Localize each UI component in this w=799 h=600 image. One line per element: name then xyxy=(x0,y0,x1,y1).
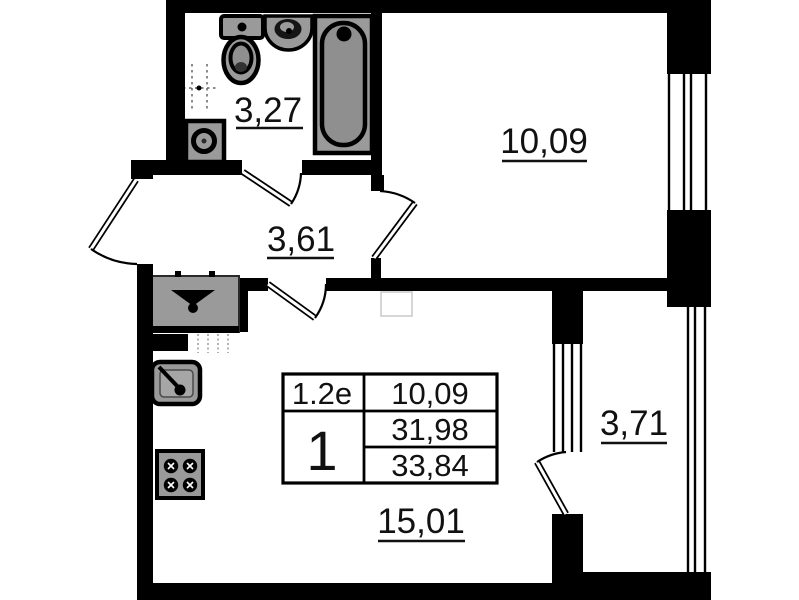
toilet xyxy=(221,16,263,83)
total-area-value: 33,84 xyxy=(391,448,469,483)
washing-machine-hub xyxy=(202,139,207,144)
kitchen-door xyxy=(268,284,326,318)
door-swing-arc xyxy=(380,191,415,203)
window-room xyxy=(669,73,706,210)
washing-machine xyxy=(186,121,224,162)
label-room-area: 10,09 xyxy=(500,122,588,161)
room-door xyxy=(374,191,415,258)
vent-nub xyxy=(209,271,215,277)
wash-basin xyxy=(265,16,312,50)
balcony-glazing xyxy=(688,305,705,574)
door-leaf-inner xyxy=(537,462,566,514)
label-kitchen-living-area: 15,01 xyxy=(377,502,465,541)
riser-point xyxy=(197,86,202,91)
wall-balcony-pier-bottom xyxy=(552,514,583,600)
room-count-value: 1 xyxy=(306,419,337,482)
living-area-value: 10,09 xyxy=(391,376,469,411)
vent-box-bottom xyxy=(151,326,239,333)
wall-hall-kitchen-long xyxy=(326,278,670,291)
balcony-door xyxy=(537,452,566,514)
bathtub-drain xyxy=(337,27,352,42)
toilet-bowl-shade xyxy=(235,62,247,72)
unit-info-table: 1.2е 1 10,09 31,98 33,84 xyxy=(283,374,497,483)
basin-drain xyxy=(286,28,292,34)
entrance-door xyxy=(91,180,137,264)
bathtub xyxy=(315,16,372,153)
label-balcony-area: 3,71 xyxy=(600,404,668,443)
wall-left-lower xyxy=(137,264,153,600)
plumbing-riser xyxy=(183,64,216,112)
door-leaf-inner xyxy=(91,180,136,249)
door-swing-arc xyxy=(315,284,326,318)
door-leaf-inner xyxy=(374,203,415,258)
door-leaf-inner xyxy=(243,172,291,204)
wall-bottom xyxy=(137,583,587,600)
wall-bathroom-room-divider xyxy=(371,0,382,191)
wall-room-door-jamb xyxy=(371,175,384,191)
wall-hall-kitchen-stub xyxy=(240,278,248,332)
wall-top xyxy=(166,0,711,13)
door-leaf-inner xyxy=(268,284,315,318)
label-hallway-area: 3,61 xyxy=(267,220,335,259)
window-kitchen-balcony xyxy=(554,344,581,452)
label-bathroom-area: 3,27 xyxy=(234,91,302,130)
wall-right-top xyxy=(667,0,711,74)
floor-plan-canvas: 3,27 10,09 3,61 15,01 3,71 1.2е 1 10,09 … xyxy=(0,0,799,600)
floor-plan: 3,27 10,09 3,61 15,01 3,71 1.2е 1 10,09 … xyxy=(0,0,799,600)
stove xyxy=(157,451,203,498)
wall-balcony-bottom xyxy=(583,572,711,600)
area-without-balcony-value: 31,98 xyxy=(391,412,469,447)
wall-bathroom-bottom-right xyxy=(302,160,371,175)
appliance-placeholder xyxy=(381,292,412,316)
vent-nub xyxy=(175,271,181,277)
door-swing-arc xyxy=(91,249,137,264)
vent-shaft-wardrobe xyxy=(151,271,239,333)
stove-body xyxy=(157,451,203,498)
bathroom-door xyxy=(243,172,301,204)
vent-hatch-marks xyxy=(198,334,228,353)
wall-right-mid xyxy=(667,210,711,307)
kitchen-sink xyxy=(152,362,200,404)
apartment-type-value: 1.2е xyxy=(292,376,352,411)
wall-balcony-pier-top xyxy=(552,290,583,344)
wall-left-upper xyxy=(166,0,185,163)
door-swing-arc xyxy=(537,452,566,462)
kitchen-faucet-base xyxy=(175,385,186,396)
vent-symbol-dot xyxy=(188,303,198,313)
toilet-button xyxy=(238,23,247,32)
wall-entry-corner xyxy=(131,160,153,179)
door-swing-arc xyxy=(291,173,301,204)
